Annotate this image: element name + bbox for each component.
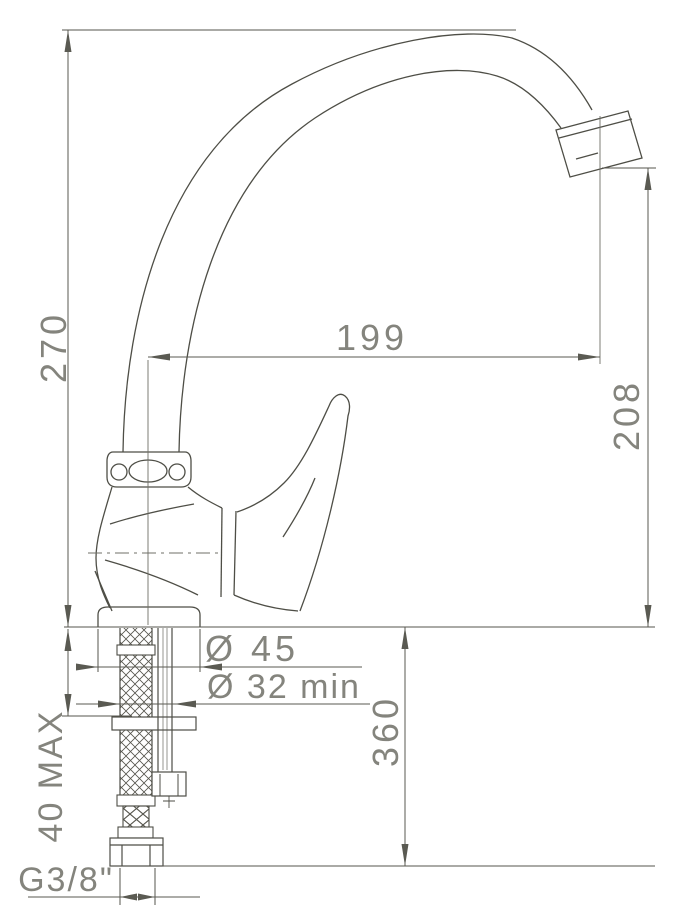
mounting-washer	[112, 717, 196, 730]
centerlines	[88, 116, 600, 625]
label-hose-thread: G3/8"	[18, 861, 114, 899]
hose-hex-nut	[110, 838, 163, 866]
spout-outer-curve	[123, 34, 592, 452]
label-hose-drop: 360	[365, 695, 406, 767]
label-spout-reach: 199	[336, 317, 408, 358]
aerator-nut	[556, 111, 642, 177]
below-deck-assembly	[110, 628, 196, 866]
mixer-body	[95, 487, 298, 611]
lever-handle	[237, 394, 350, 611]
label-base-diameter: Ø 45	[205, 628, 299, 669]
label-deck-thickness: 40 MAX	[32, 710, 70, 843]
label-outlet-height: 208	[606, 379, 647, 451]
drawing-canvas: 270 199 208 360 40 MAX Ø 45 Ø 32 min G3/…	[0, 0, 696, 916]
supply-hose-lower	[117, 730, 155, 838]
spout-inner-curve	[179, 70, 561, 452]
label-hole-diameter: Ø 32 min	[207, 668, 361, 706]
label-overall-height: 270	[33, 311, 74, 383]
dim-40max	[65, 629, 72, 716]
faucet-dimension-drawing: 270 199 208 360 40 MAX Ø 45 Ø 32 min G3/…	[0, 0, 696, 916]
spout-collar	[107, 452, 191, 487]
base-flange	[98, 607, 200, 627]
